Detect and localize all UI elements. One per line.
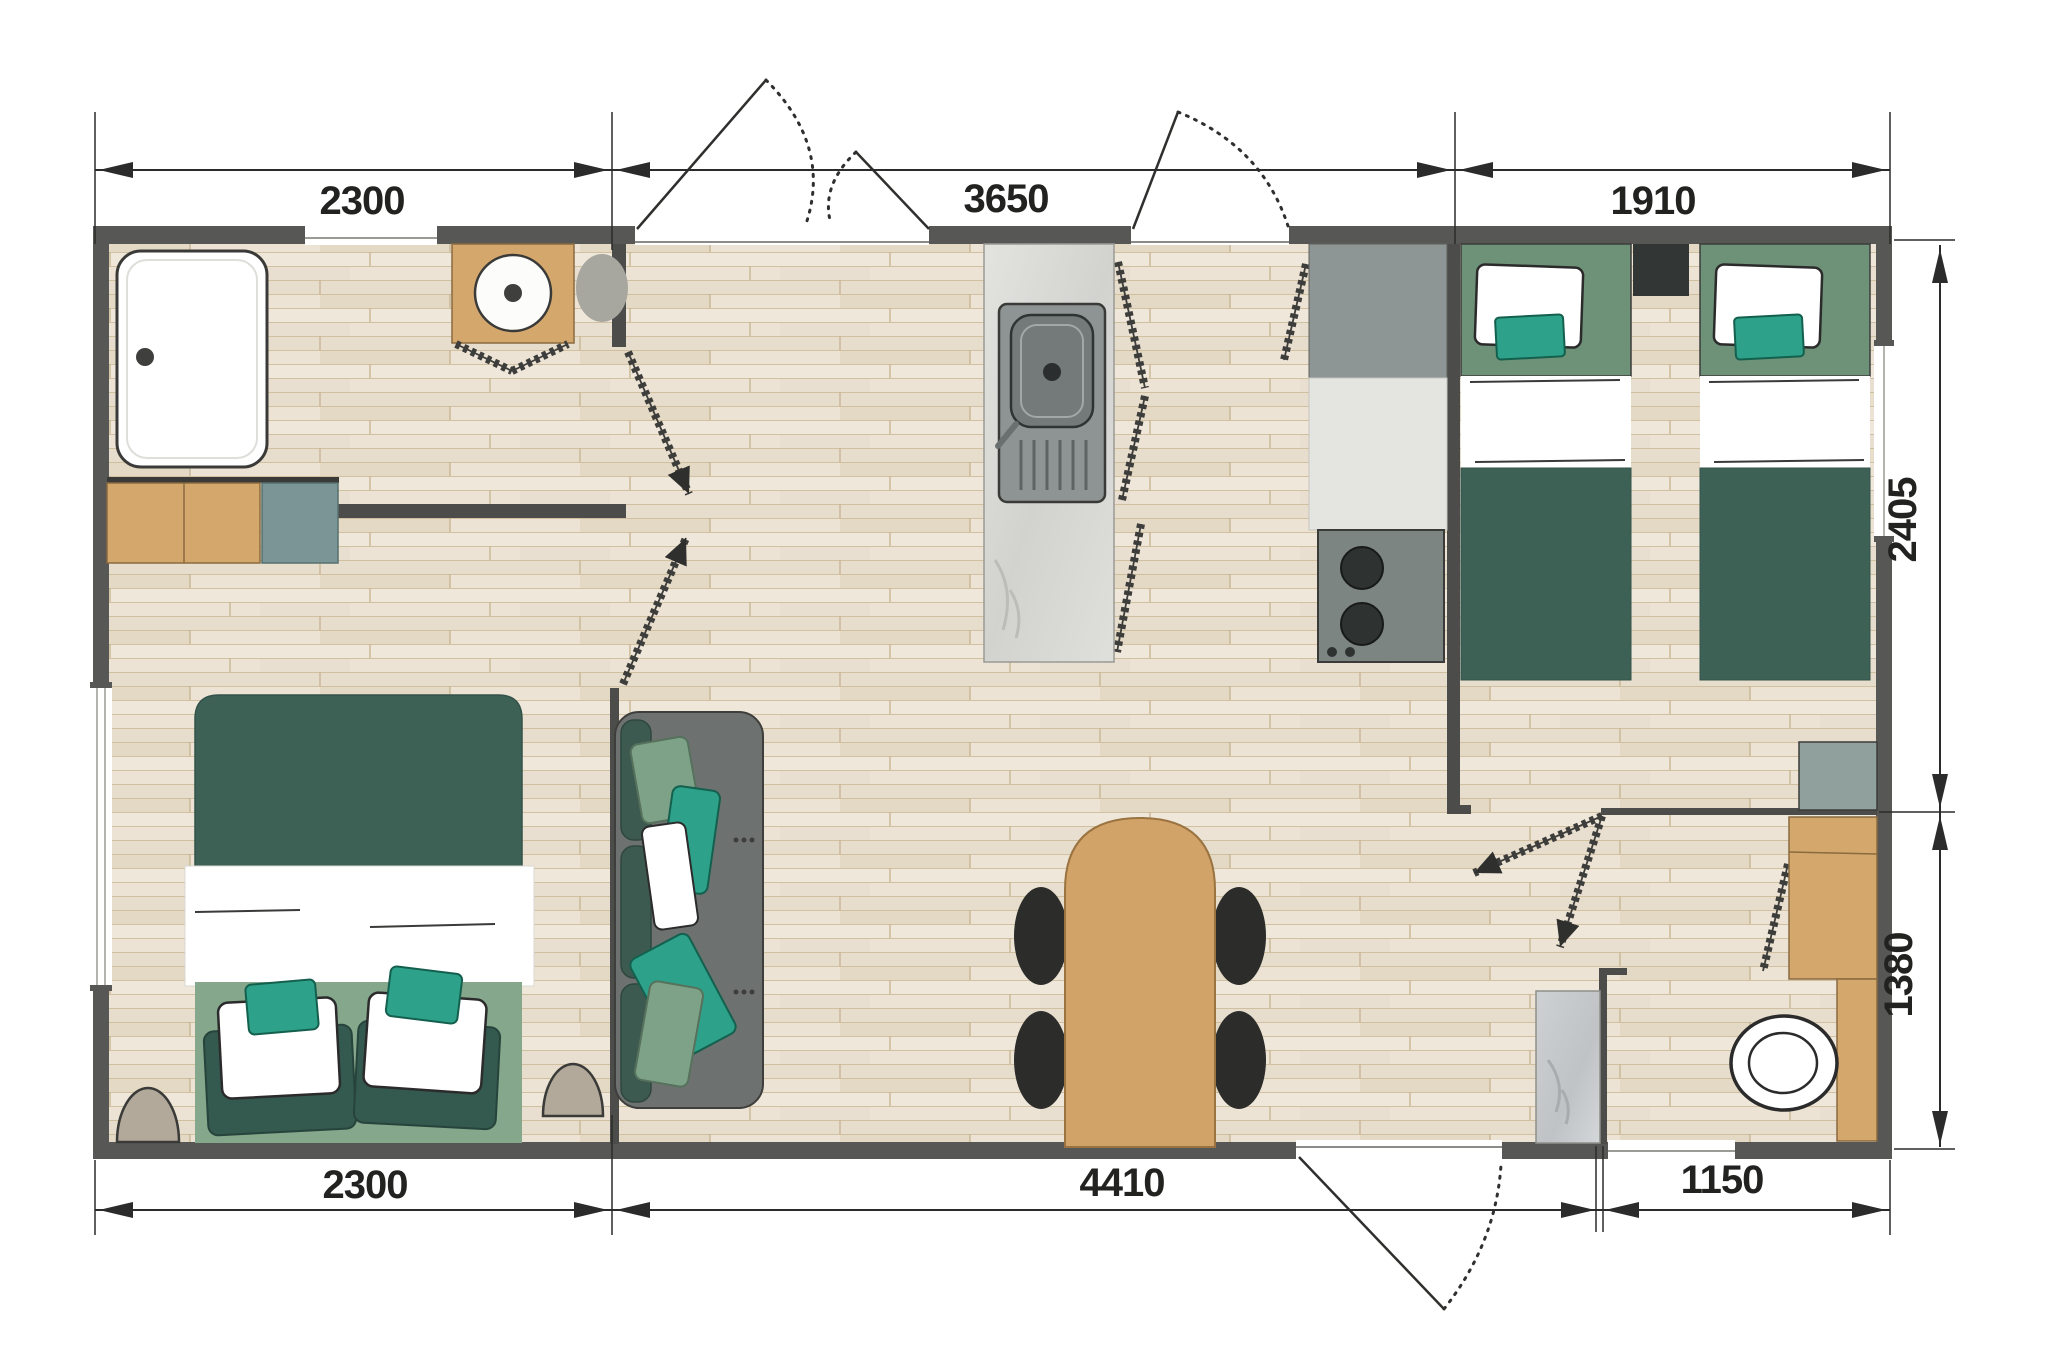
cushion-teal-right	[385, 966, 463, 1024]
entry-door-leaf2-line	[856, 152, 929, 229]
dining-chair	[1014, 1011, 1068, 1109]
double-bed-sheet	[185, 866, 534, 986]
bathroom-cabinet-teal	[262, 483, 338, 563]
wall-bathroom-bedroom	[337, 504, 626, 518]
window-bedroom-left	[90, 685, 112, 988]
sink-drain-icon	[1043, 363, 1061, 381]
floor-plan-canvas: 2300 3650 1910 2300 4410 1150 2405 1380	[0, 0, 2048, 1365]
wc-cabinet-upper	[1789, 817, 1877, 979]
cushion-teal-left	[245, 979, 319, 1035]
wardrobe	[1799, 742, 1877, 810]
dim-bottom-mid: 4410	[1080, 1161, 1165, 1205]
entry-door-leaf-line	[637, 80, 766, 229]
hob-knob-icon	[1327, 647, 1337, 657]
tall-kitchen-unit	[1309, 244, 1447, 378]
rear-door-leaf-line	[1299, 1157, 1444, 1309]
entry-door-swing-arc2	[828, 152, 856, 224]
entry-door-swing-arc	[766, 80, 813, 224]
cabinet-top-edge	[107, 477, 339, 483]
dim-bottom-right: 1150	[1681, 1158, 1764, 1202]
single-bed-right	[1700, 244, 1870, 680]
double-bed-duvet	[195, 695, 522, 878]
bed-blanket	[1461, 468, 1631, 680]
shower-drain-icon	[136, 348, 154, 366]
dim-bottom-left: 2300	[323, 1163, 408, 1207]
bed-blanket	[1700, 468, 1870, 680]
single-bed-left	[1461, 244, 1631, 680]
wc-cabinet-lower	[1837, 979, 1877, 1141]
cushion-teal	[1495, 314, 1565, 360]
window-bathroom	[305, 225, 437, 245]
hob-knob-icon	[1345, 647, 1355, 657]
dim-right-upper: 2405	[1881, 477, 1925, 563]
hob-burner-icon	[1341, 603, 1383, 645]
dining-table	[1065, 818, 1215, 1147]
wall-twinroom-stub	[1447, 805, 1471, 814]
wall-kitchen-twinroom	[1447, 244, 1460, 812]
hob-burner-icon	[1341, 547, 1383, 589]
kitchen-counter	[1309, 378, 1447, 530]
washbasin-drain-icon	[504, 284, 522, 302]
bed-sheet	[1700, 376, 1870, 468]
rear-door-swing-arc	[1444, 1165, 1501, 1309]
dim-top-left: 2300	[320, 179, 405, 223]
dim-right-lower: 1380	[1877, 933, 1921, 1018]
dining-chair	[1212, 1011, 1266, 1109]
cushion-teal	[1734, 314, 1804, 360]
bed-sheet	[1461, 376, 1631, 468]
hob-unit	[1318, 530, 1444, 662]
toilet-bowl-icon	[1749, 1033, 1817, 1093]
floor-plan: 2300 3650 1910 2300 4410 1150 2405 1380	[0, 0, 2048, 1365]
dim-top-right: 1910	[1611, 179, 1696, 223]
wall-fixture-half-round	[576, 254, 628, 322]
dining-chair	[1014, 887, 1068, 985]
rear-door-opening	[1296, 1140, 1502, 1160]
nightstand	[1633, 244, 1689, 296]
dining-chair	[1212, 887, 1266, 985]
dim-top-mid: 3650	[964, 177, 1049, 221]
